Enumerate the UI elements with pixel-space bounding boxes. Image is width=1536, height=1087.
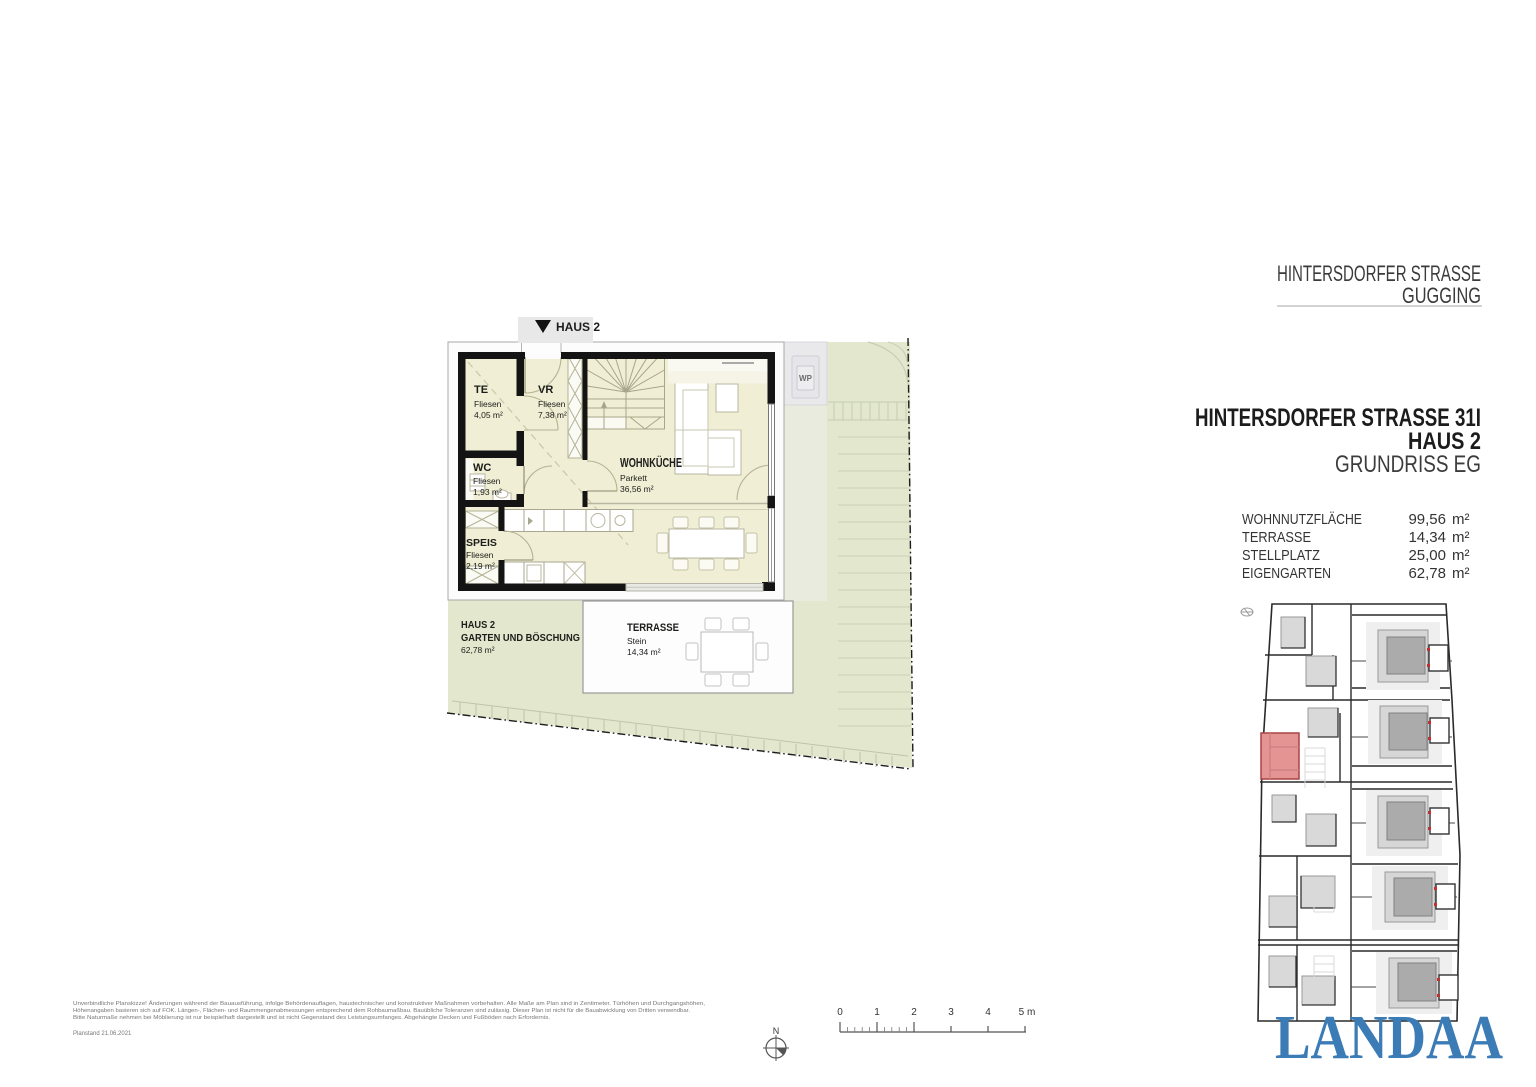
svg-text:3: 3 bbox=[948, 1007, 954, 1018]
svg-text:14,34 m²: 14,34 m² bbox=[627, 647, 661, 657]
svg-text:Fliesen: Fliesen bbox=[473, 476, 501, 486]
svg-text:Parkett: Parkett bbox=[620, 473, 648, 483]
svg-text:WC: WC bbox=[473, 462, 491, 474]
svg-text:Fliesen: Fliesen bbox=[466, 550, 494, 560]
svg-text:1: 1 bbox=[874, 1007, 880, 1018]
svg-text:Bitte Naturmaße nehmen bei Möb: Bitte Naturmaße nehmen bei Möblierung is… bbox=[73, 1015, 550, 1021]
svg-text:N: N bbox=[773, 1026, 780, 1036]
svg-text:Höhenangaben basieren sich auf: Höhenangaben basieren sich auf FOK. Läng… bbox=[73, 1008, 690, 1014]
svg-text:m²: m² bbox=[1452, 529, 1470, 546]
svg-text:25,00: 25,00 bbox=[1408, 547, 1446, 564]
svg-text:36,56 m²: 36,56 m² bbox=[620, 484, 654, 494]
svg-text:GRUNDRISS EG: GRUNDRISS EG bbox=[1335, 451, 1481, 478]
svg-text:m²: m² bbox=[1452, 511, 1470, 528]
svg-text:STELLPLATZ: STELLPLATZ bbox=[1242, 547, 1320, 564]
svg-text:Stein: Stein bbox=[627, 636, 647, 646]
svg-text:4: 4 bbox=[985, 1007, 991, 1018]
svg-text:HAUS 2: HAUS 2 bbox=[461, 620, 495, 631]
svg-text:m²: m² bbox=[1452, 547, 1470, 564]
svg-text:GUGGING: GUGGING bbox=[1402, 283, 1481, 308]
svg-text:Fliesen: Fliesen bbox=[474, 399, 502, 409]
svg-text:2,19 m²: 2,19 m² bbox=[466, 561, 495, 571]
svg-text:99,56: 99,56 bbox=[1408, 511, 1446, 528]
svg-text:Unverbindliche Planskizze! Änd: Unverbindliche Planskizze! Änderungen wä… bbox=[73, 1000, 705, 1007]
svg-text:5 m: 5 m bbox=[1019, 1007, 1036, 1018]
svg-text:2: 2 bbox=[911, 1007, 917, 1018]
svg-text:TERRASSE: TERRASSE bbox=[1242, 529, 1311, 546]
svg-text:7,38 m²: 7,38 m² bbox=[538, 410, 567, 420]
svg-text:4,05 m²: 4,05 m² bbox=[474, 410, 503, 420]
svg-text:HAUS 2: HAUS 2 bbox=[556, 320, 600, 334]
svg-text:62,78 m²: 62,78 m² bbox=[461, 645, 495, 655]
svg-text:62,78: 62,78 bbox=[1408, 565, 1446, 582]
svg-text:Fliesen: Fliesen bbox=[538, 399, 566, 409]
svg-text:GARTEN UND BÖSCHUNG: GARTEN UND BÖSCHUNG bbox=[461, 631, 580, 644]
svg-text:1,93 m²: 1,93 m² bbox=[473, 487, 502, 497]
svg-text:SPEIS: SPEIS bbox=[466, 537, 497, 549]
svg-text:WP: WP bbox=[799, 374, 813, 383]
svg-text:EIGENGARTEN: EIGENGARTEN bbox=[1242, 565, 1331, 582]
svg-text:LANDAA: LANDAA bbox=[1275, 1004, 1503, 1072]
svg-text:m²: m² bbox=[1452, 565, 1470, 582]
svg-text:TERRASSE: TERRASSE bbox=[627, 622, 679, 634]
svg-text:Planstand 21.06.2021: Planstand 21.06.2021 bbox=[73, 1031, 132, 1037]
svg-text:0: 0 bbox=[837, 1007, 843, 1018]
svg-text:WOHNNUTZFLÄCHE: WOHNNUTZFLÄCHE bbox=[1242, 511, 1362, 528]
svg-text:TE: TE bbox=[474, 384, 488, 396]
svg-text:14,34: 14,34 bbox=[1408, 529, 1446, 546]
svg-text:VR: VR bbox=[538, 384, 553, 396]
svg-text:WOHNKÜCHE: WOHNKÜCHE bbox=[620, 455, 682, 470]
